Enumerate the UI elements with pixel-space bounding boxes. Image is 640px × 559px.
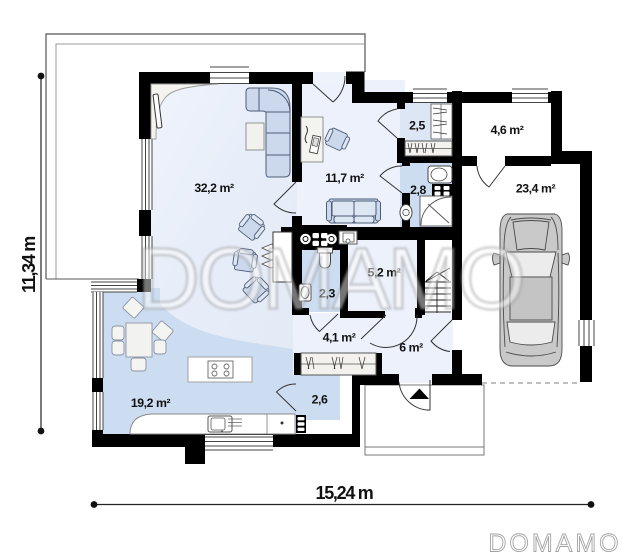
svg-text:32,2 m²: 32,2 m² bbox=[194, 181, 234, 195]
svg-text:DOMAMO: DOMAMO bbox=[488, 530, 621, 558]
svg-text:19,2 m²: 19,2 m² bbox=[131, 396, 171, 410]
svg-text:11,7 m²: 11,7 m² bbox=[325, 171, 364, 185]
svg-text:4,1 m²: 4,1 m² bbox=[323, 331, 356, 345]
svg-text:15,24 m: 15,24 m bbox=[316, 483, 373, 503]
svg-text:4,6 m²: 4,6 m² bbox=[491, 123, 524, 137]
svg-text:2,6: 2,6 bbox=[312, 393, 328, 407]
svg-text:2,8: 2,8 bbox=[410, 183, 426, 197]
svg-text:DOMAMO: DOMAMO bbox=[137, 231, 523, 328]
svg-text:6 m²: 6 m² bbox=[399, 341, 423, 355]
svg-text:11,34 m: 11,34 m bbox=[19, 237, 39, 293]
svg-text:23,4 m²: 23,4 m² bbox=[516, 182, 556, 196]
svg-text:2,5: 2,5 bbox=[409, 119, 425, 133]
